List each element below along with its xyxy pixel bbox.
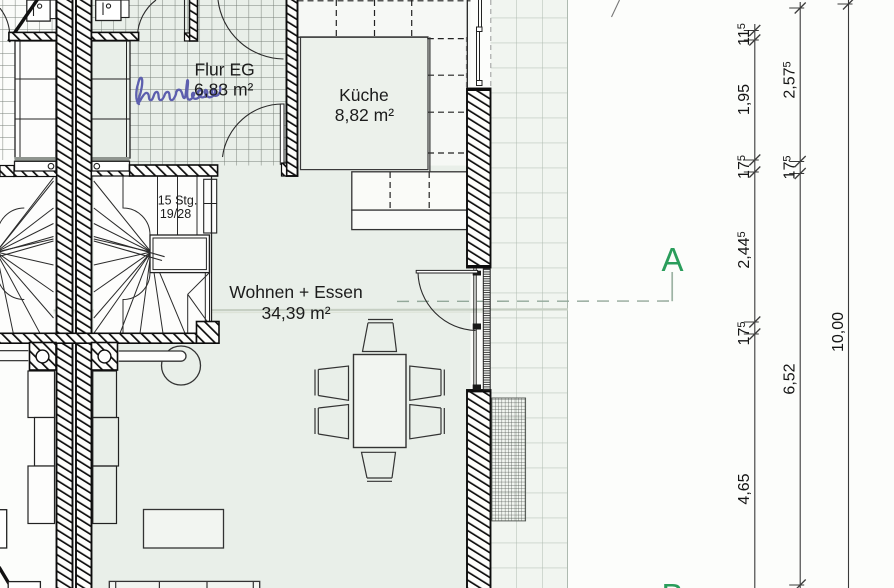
svg-text:6,52: 6,52 [782, 363, 799, 394]
svg-text:A: A [661, 241, 683, 278]
svg-text:34,39 m²: 34,39 m² [261, 303, 330, 323]
svg-text:4,65: 4,65 [736, 473, 753, 504]
svg-text:6,83 m²: 6,83 m² [194, 79, 253, 99]
svg-text:10,00: 10,00 [830, 312, 847, 352]
svg-text:B: B [661, 577, 683, 588]
svg-text:19/28: 19/28 [160, 207, 191, 221]
svg-text:1,95: 1,95 [736, 84, 753, 115]
svg-text:Flur EG: Flur EG [194, 60, 254, 80]
svg-text:Küche: Küche [339, 85, 389, 105]
svg-text:15 Stg.: 15 Stg. [158, 194, 198, 208]
svg-text:8,82 m²: 8,82 m² [335, 105, 394, 125]
svg-text:Wohnen + Essen: Wohnen + Essen [229, 282, 362, 302]
